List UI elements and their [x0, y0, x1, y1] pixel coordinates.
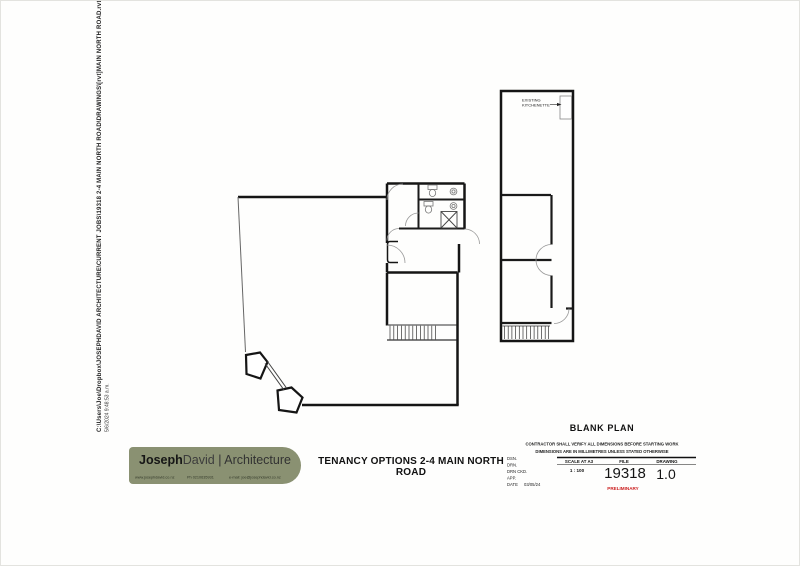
drawing-number: 1.0: [645, 466, 687, 482]
contractor-note-line2: DIMENSIONS ARE IN MILLIMETRES UNLESS STA…: [535, 449, 668, 454]
date-label: DATE: [507, 482, 518, 487]
drawing-column-header: DRAWING: [656, 459, 678, 464]
file-column-header: FILE: [619, 459, 629, 464]
drawing-name: BLANK PLAN: [506, 423, 698, 433]
logo-name-separator: |: [215, 453, 225, 467]
date-value: 03/05/24: [524, 482, 541, 487]
architect-logo-block: JosephDavid | Architecture: [129, 447, 301, 484]
drawing-sheet: JosephDavid | Architecture TENANCY OPTIO…: [0, 0, 800, 566]
east-entry-door-arc: [465, 229, 480, 244]
scale-value: 1 : 100: [570, 468, 585, 473]
main-plan-stairs: [387, 325, 457, 340]
entry-door-panel-1: [246, 353, 268, 379]
entry-vestibule: [246, 353, 303, 413]
secondary-plan-stairs: [503, 326, 551, 339]
secondary-plan-internal-walls: [502, 195, 573, 323]
logo-name-bold: Joseph: [139, 453, 183, 467]
kitchenette-counter: [560, 96, 572, 119]
file-path-vertical: C:\Users\Joe\Dropbox\JOSEPHDAVID ARCHITE…: [97, 1, 111, 432]
status-badge: PRELIMINARY: [607, 486, 638, 491]
angled-left-wall: [238, 197, 246, 352]
secondary-floor-plan: EXISTING KITCHENETTE: [501, 91, 573, 341]
logo-name-light: David: [183, 453, 215, 467]
toilet-block: [387, 184, 480, 273]
shower-tray: [441, 212, 457, 229]
main-plan-outer-walls: [238, 197, 459, 405]
file-path-text: C:\Users\Joe\Dropbox\JOSEPHDAVID ARCHITE…: [97, 1, 103, 432]
kitchenette-leader-arrow-icon: [557, 103, 562, 106]
print-timestamp-text: 5/6/2024 9:48:53 a.m.: [105, 383, 111, 432]
toilet-cistern-1: [428, 185, 437, 190]
title-block-fields: DSN. DRN. DRN CKD. APP. DATE 03/05/24: [507, 456, 541, 487]
lower-door-arc: [554, 309, 569, 324]
basin-1: [450, 188, 457, 195]
toilet-bowl-2: [425, 206, 431, 213]
basin-2: [450, 203, 457, 210]
toilet-cistern-2: [424, 202, 433, 207]
kitchenette-label-line1: EXISTING: [522, 98, 541, 103]
stair-treads: [505, 326, 549, 339]
architect-logo-name: JosephDavid | Architecture: [139, 453, 291, 467]
kitchenette-label-line2: KITCHENETTE: [522, 103, 550, 108]
lobby-door-recess: [388, 242, 399, 263]
sheet-title: TENANCY OPTIONS 2-4 MAIN NORTH ROAD: [313, 456, 509, 478]
secondary-plan-outer-walls: [501, 91, 573, 341]
door-swing-arcs: [387, 184, 480, 263]
double-door-arcs: [536, 245, 552, 276]
logo-discipline: Architecture: [224, 453, 291, 467]
entry-glazing-lines: [265, 362, 287, 391]
stair-treads: [390, 326, 436, 340]
wc-fixtures: [424, 185, 457, 213]
scale-column-header: SCALE AT A3: [565, 459, 594, 464]
main-floor-plan: [238, 184, 480, 413]
drn-ckd-label: DRN CKD.: [507, 469, 527, 474]
contractor-note-line1: CONTRACTOR SHALL VERIFY ALL DIMENSIONS B…: [525, 442, 678, 447]
entry-door-panel-2: [278, 388, 303, 413]
toilet-bowl-1: [429, 189, 435, 196]
